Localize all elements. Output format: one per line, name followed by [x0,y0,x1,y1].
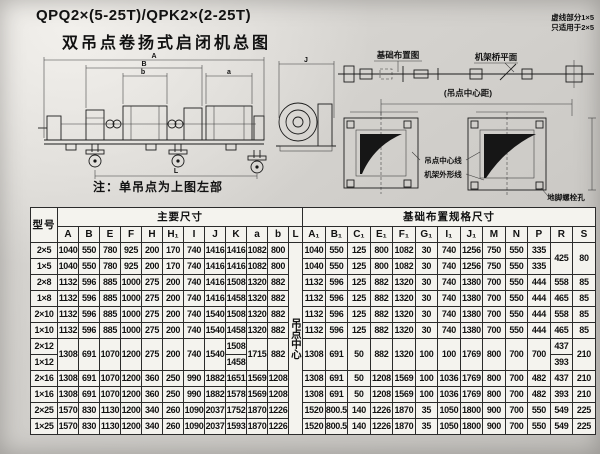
table-cell: 170 [163,259,184,275]
table-cell: 200 [163,339,184,371]
table-cell: 550 [505,291,528,307]
table-cell: 140 [348,403,371,419]
table-cell: 200 [142,259,163,275]
table-cell: 750 [483,259,506,275]
table-cell: 882 [370,307,393,323]
table-cell: 1200 [121,419,142,435]
table-cell: 1132 [58,307,79,323]
table-cell: 1256 [460,259,483,275]
table-cell: 700 [505,387,528,403]
technical-drawings: b a B A J L 基础布置图 机架桥平面 [0,0,600,210]
table-cell: 1000 [121,275,142,291]
table-cell: 700 [483,307,506,323]
table-cell: 1570 [58,419,79,435]
table-body: 2×51040550780925200170740141614161082800… [31,243,596,435]
table-cell: 700 [483,323,506,339]
table-cell: 1308 [303,371,326,387]
table-cell: 1458 [226,355,247,371]
table-cell: 260 [163,403,184,419]
table-cell: 990 [184,387,205,403]
table-cell: 1320 [393,275,416,291]
table-cell: 200 [163,323,184,339]
table-cell: 125 [348,323,371,339]
table-cell: 170 [163,243,184,259]
table-cell: 740 [184,339,205,371]
dashed-note-line2: 只适用于2×5 [551,22,594,32]
table-cell: 1569 [393,371,416,387]
table-cell: 360 [142,371,163,387]
table-row: 2×16130869110701200360250990188216511569… [31,371,596,387]
table-cell: 1040 [58,243,79,259]
table-cell: 550 [325,259,348,275]
table-cell: 691 [79,371,100,387]
table-cell: 882 [268,323,289,339]
table-cell: 550 [528,403,551,419]
table-cell: 100 [415,339,438,371]
table-cell: 1132 [58,323,79,339]
group-header-row: 型号 主要尺寸 基础布置规格尺寸 [31,208,596,227]
table-cell: 1520 [303,403,326,419]
table-cell: 691 [325,371,348,387]
table-cell: 1050 [438,403,461,419]
table-cell: 1308 [303,387,326,403]
dim-label-a: a [227,69,231,76]
table-cell: 1800 [460,419,483,435]
col-header: C₁ [348,227,371,243]
table-cell: 85 [573,275,596,291]
table-cell: 482 [528,387,551,403]
table-cell: 740 [184,243,205,259]
col-header: J [205,227,226,243]
table-cell: 1458 [226,291,247,307]
table-cell: 691 [79,339,100,371]
table-cell: 50 [348,371,371,387]
table-cell: 210 [573,371,596,387]
table-cell: 125 [348,307,371,323]
table-cell: 1416 [205,275,226,291]
table-cell: 1320 [247,323,268,339]
col-header: G₁ [415,227,438,243]
table-cell: 1256 [460,243,483,259]
table-cell: 50 [348,339,371,371]
table-cell: 1226 [370,419,393,435]
table-cell: 800.5 [325,403,348,419]
table-cell: 800.5 [325,419,348,435]
table-cell: 549 [550,419,573,435]
table-cell: 740 [184,259,205,275]
row-model: 2×8 [31,275,58,291]
table-cell: 1132 [303,291,326,307]
table-cell: 1000 [121,323,142,339]
table-cell: 780 [100,243,121,259]
table-row: 2×12130869110701200275200740154015081715… [31,339,596,355]
row-model: 1×10 [31,323,58,339]
table-cell: 1540 [205,307,226,323]
table-cell: 700 [505,371,528,387]
table-cell: 200 [142,243,163,259]
row-model: 1×5 [31,259,58,275]
table-cell: 596 [79,275,100,291]
table-cell: 1769 [460,387,483,403]
table-cell: 1882 [205,387,226,403]
table-cell: 1715 [247,339,268,371]
table-cell: 550 [528,419,551,435]
table-cell: 1000 [121,291,142,307]
table-cell: 691 [325,387,348,403]
table-cell: 830 [79,403,100,419]
table-cell: 1578 [226,387,247,403]
table-cell: 1870 [247,419,268,435]
col-header: B [79,227,100,243]
table-cell: 1320 [393,339,416,371]
col-header: K [226,227,247,243]
model-column-header: 型号 [31,208,58,243]
pulley-hanger [169,144,187,167]
table-cell: 882 [370,291,393,307]
col-header: I₁ [438,227,461,243]
dim-label-L: L [174,168,179,175]
row-model: 1×16 [31,387,58,403]
table-cell: 1090 [184,419,205,435]
table-row: 2×51040550780925200170740141614161082800… [31,243,596,259]
table-cell: 250 [163,371,184,387]
table-cell: 750 [483,243,506,259]
table-cell: 275 [142,291,163,307]
table-cell: 550 [325,243,348,259]
table-cell: 1036 [438,387,461,403]
table-cell: 885 [100,291,121,307]
table-cell: 1308 [303,339,326,371]
table-cell: 1320 [247,275,268,291]
table-cell: 550 [505,275,528,291]
table-cell: 1308 [58,339,79,371]
row-model: 2×10 [31,307,58,323]
table-cell: 1050 [438,419,461,435]
table-cell: 549 [550,403,573,419]
table-cell: 444 [528,275,551,291]
group-header-main: 主要尺寸 [58,208,303,227]
col-header: B₁ [325,227,348,243]
table-cell: 800 [370,243,393,259]
table-row: 2×81132596885100027520074014161508132088… [31,275,596,291]
table-cell: 85 [573,291,596,307]
table-cell: 800 [268,243,289,259]
table-cell: 882 [370,323,393,339]
table-cell: 691 [79,387,100,403]
table-cell: 125 [348,291,371,307]
table-cell: 444 [528,307,551,323]
anchor-bolt-label: 地脚螺栓孔 [547,192,585,202]
col-header: P [528,227,551,243]
table-cell: 444 [528,291,551,307]
table-row: 1×81132596885100027520074014161458132088… [31,291,596,307]
col-header: H [142,227,163,243]
table-cell: 740 [438,323,461,339]
table-cell: 1090 [184,403,205,419]
table-cell: 1882 [205,371,226,387]
table-cell: 596 [325,291,348,307]
col-header: F₁ [393,227,416,243]
table-cell: 225 [573,403,596,419]
table-cell: 1040 [303,243,326,259]
table-cell: 200 [163,291,184,307]
row-model: 1×12 [31,355,58,371]
table-cell: 1380 [460,275,483,291]
table-cell: 740 [184,291,205,307]
table-cell: 1508 [226,339,247,355]
table-row: 2×10113259688510002752007401540150813208… [31,307,596,323]
table-cell: 1569 [247,387,268,403]
table-cell: 1540 [205,323,226,339]
table-cell: 35 [415,403,438,419]
table-cell: 340 [142,419,163,435]
table-cell: 1320 [247,307,268,323]
table-cell: 1416 [226,259,247,275]
pulley-hanger [86,144,104,167]
table-cell: 1320 [393,323,416,339]
table-cell: 1132 [303,323,326,339]
table-cell: 275 [142,339,163,371]
table-cell: 900 [483,419,506,435]
frame-bridge-label: 机架桥平面 [475,52,518,62]
table-cell: 550 [505,307,528,323]
table-cell: 1752 [226,403,247,419]
table-row: 1×10113259688510002752007401540145813208… [31,323,596,339]
table-cell: 830 [79,419,100,435]
table-cell: 882 [268,275,289,291]
table-cell: 885 [100,307,121,323]
pulley-hanger [248,150,266,173]
table-cell: 393 [550,355,573,371]
row-model: 2×25 [31,403,58,419]
table-cell: 596 [79,323,100,339]
col-header: J₁ [460,227,483,243]
table-cell: 100 [438,339,461,371]
table-cell: 125 [348,259,371,275]
table-cell: 1769 [460,371,483,387]
table-cell: 125 [348,275,371,291]
col-header: F [121,227,142,243]
col-header: E [100,227,121,243]
table-cell: 1870 [393,403,416,419]
table-cell: 596 [325,307,348,323]
col-header: b [268,227,289,243]
table-cell: 1416 [226,243,247,259]
table-cell: 1132 [58,275,79,291]
table-cell: 700 [483,291,506,307]
table-cell: 1132 [58,291,79,307]
table-cell: 1870 [247,403,268,419]
table-cell: 30 [415,243,438,259]
table-cell: 85 [573,307,596,323]
table-cell: 885 [100,275,121,291]
table-cell: 260 [163,419,184,435]
table-cell: 1226 [268,403,289,419]
table-cell: 700 [483,275,506,291]
dim-label-A: A [151,53,156,60]
table-cell: 1040 [58,259,79,275]
table-cell: 360 [142,387,163,403]
table-cell: 1308 [58,371,79,387]
table-cell: 1593 [226,419,247,435]
table-row: 1×51040550780925200170740141614161082800… [31,259,596,275]
table-cell: 700 [505,419,528,435]
col-header: H₁ [163,227,184,243]
table-cell: 1320 [247,291,268,307]
table-cell: 558 [550,307,573,323]
table-cell: 1540 [205,339,226,371]
col-header: I [184,227,205,243]
table-cell: 35 [415,419,438,435]
col-header: R [550,227,573,243]
col-header: a [247,227,268,243]
dim-label-B: B [141,61,146,68]
table-cell: 1070 [100,387,121,403]
table-cell: 882 [268,291,289,307]
row-model: 2×5 [31,243,58,259]
table-cell: 550 [505,259,528,275]
table-cell: 30 [415,275,438,291]
table-cell: 200 [163,275,184,291]
dim-label-b: b [141,69,145,76]
table-cell: 1416 [205,243,226,259]
table-cell: 740 [438,259,461,275]
table-cell: 1208 [370,387,393,403]
group-header-foundation: 基础布置规格尺寸 [303,208,596,227]
table-cell: 1070 [100,371,121,387]
table-cell: 1226 [268,419,289,435]
table-cell: 740 [438,275,461,291]
table-cell: 1380 [460,323,483,339]
table-cell: 1320 [393,307,416,323]
table-cell: 1200 [121,339,142,371]
row-model: 2×12 [31,339,58,355]
table-cell: 800 [370,259,393,275]
table-cell: 275 [142,323,163,339]
table-cell: 250 [163,387,184,403]
hoist-center-line-label: 吊点中心线 [424,155,462,165]
table-cell: 100 [415,387,438,403]
table-cell: 275 [142,275,163,291]
table-cell: 482 [528,371,551,387]
table-cell: 1569 [247,371,268,387]
table-cell: 437 [550,339,573,355]
hoist-center-cell: 吊点中心 [289,243,303,435]
table-cell: 444 [528,323,551,339]
table-cell: 925 [121,243,142,259]
table-cell: 2037 [205,419,226,435]
table-cell: 1200 [121,403,142,419]
table-cell: 1130 [100,419,121,435]
table-cell: 30 [415,291,438,307]
table-cell: 1082 [393,259,416,275]
table-cell: 1082 [247,259,268,275]
table-cell: 1458 [226,323,247,339]
table-cell: 1520 [303,419,326,435]
col-header: A [58,227,79,243]
table-cell: 882 [268,339,289,371]
column-letters-row: ABEFHH₁IJKabLA₁B₁C₁E₁F₁G₁I₁J₁MNPRS [31,227,596,243]
table-cell: 740 [438,243,461,259]
table-cell: 100 [415,371,438,387]
table-cell: 1082 [393,243,416,259]
table-cell: 1870 [393,419,416,435]
table-cell: 80 [573,243,596,275]
table-cell: 800 [268,259,289,275]
table-cell: 596 [325,323,348,339]
drawing-note: 注：单吊点为上图左部 [93,178,223,195]
table-cell: 1380 [460,307,483,323]
table-cell: 140 [348,419,371,435]
table-cell: 437 [550,371,573,387]
table-cell: 800 [483,339,506,371]
table-cell: 2037 [205,403,226,419]
row-model: 2×16 [31,371,58,387]
table-cell: 1200 [121,387,142,403]
table-cell: 1569 [393,387,416,403]
table-cell: 1082 [247,243,268,259]
hoist-center-distance-label: (吊点中心距) [444,88,492,98]
table-cell: 1416 [205,291,226,307]
table-cell: 30 [415,323,438,339]
table-cell: 596 [79,291,100,307]
table-row: 1×16130869110701200360250990188215781569… [31,387,596,403]
table-cell: 200 [163,307,184,323]
table-cell: 900 [483,403,506,419]
table-cell: 1508 [226,275,247,291]
table-cell: 335 [528,243,551,259]
table-cell: 1132 [303,275,326,291]
col-header: S [573,227,596,243]
table-cell: 1040 [303,259,326,275]
table-cell: 30 [415,259,438,275]
table-cell: 596 [325,275,348,291]
dimension-lines: b a B A J L [44,53,334,179]
foundation-plan-drawing: (吊点中心距) [344,88,596,202]
table-cell: 30 [415,307,438,323]
document-page: QPQ2×(5-25T)/QPK2×(2-25T) 双吊点卷扬式启闭机总图 [0,0,600,454]
foundation-plan-label: 基础布置图 [376,50,420,60]
table-cell: 1200 [121,371,142,387]
table-cell: 558 [550,275,573,291]
col-header: E₁ [370,227,393,243]
table-cell: 465 [550,291,573,307]
table-cell: 1320 [393,291,416,307]
col-header: A₁ [303,227,326,243]
table-cell: 740 [184,323,205,339]
row-model: 1×8 [31,291,58,307]
table-cell: 1651 [226,371,247,387]
machinery-elevation-drawing: b a B A J L [38,53,336,179]
table-cell: 780 [100,259,121,275]
table-cell: 1416 [205,259,226,275]
table-cell: 550 [505,323,528,339]
table-cell: 1570 [58,403,79,419]
foundation-strip-drawing: 基础布置图 机架桥平面 虚线部分1×5 只适用于2×5 [338,12,594,88]
table-cell: 800 [483,387,506,403]
table-cell: 882 [268,307,289,323]
table-cell: 800 [483,371,506,387]
table-cell: 1800 [460,403,483,419]
table-cell: 393 [550,387,573,403]
table-cell: 700 [505,403,528,419]
table-cell: 1036 [438,371,461,387]
table-cell: 882 [370,339,393,371]
table-cell: 125 [348,243,371,259]
table-cell: 85 [573,323,596,339]
table-cell: 210 [573,339,596,371]
table-cell: 1208 [370,371,393,387]
